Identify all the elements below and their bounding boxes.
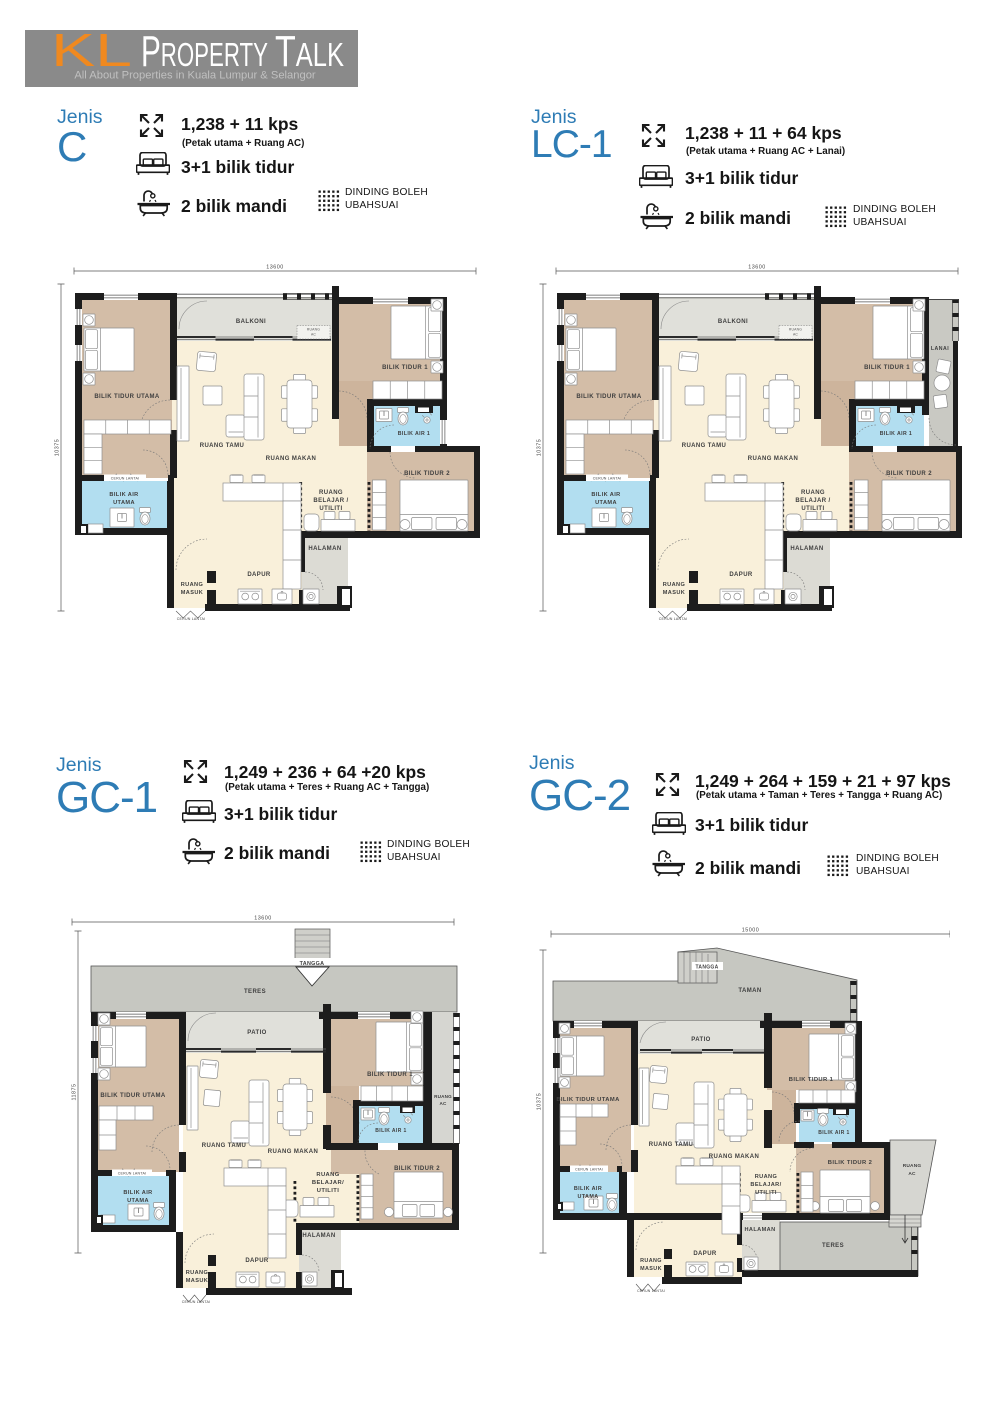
svg-text:AC: AC (439, 1101, 447, 1106)
svg-text:BILIK AIR 1: BILIK AIR 1 (375, 1128, 406, 1134)
svg-text:UTILITI: UTILITI (801, 506, 824, 512)
svg-text:CERUN LANTAI: CERUN LANTAI (637, 1289, 665, 1293)
svg-text:RUANG TAMU: RUANG TAMU (649, 1142, 694, 1148)
svg-text:BILIK AIR: BILIK AIR (109, 492, 138, 498)
svg-text:CERUN LANTAI: CERUN LANTAI (118, 1172, 147, 1176)
svg-text:BILIK AIR 1: BILIK AIR 1 (818, 1130, 849, 1136)
svg-text:HALAMAN: HALAMAN (790, 546, 823, 552)
svg-text:UTAMA: UTAMA (595, 500, 617, 506)
svg-text:BILIK AIR: BILIK AIR (574, 1186, 602, 1192)
svg-text:BELAJAR /: BELAJAR / (795, 498, 830, 504)
svg-text:DAPUR: DAPUR (245, 1258, 269, 1264)
svg-text:AC: AC (908, 1171, 916, 1177)
svg-text:RUANG: RUANG (316, 1172, 339, 1178)
svg-text:RUANG MAKAN: RUANG MAKAN (748, 456, 798, 462)
svg-text:BILIK TIDUR 2: BILIK TIDUR 2 (404, 471, 450, 477)
svg-text:RUANG: RUANG (319, 490, 343, 496)
svg-text:MASUK: MASUK (186, 1278, 209, 1284)
svg-text:RUANG TAMU: RUANG TAMU (202, 1143, 247, 1149)
svg-text:DAPUR: DAPUR (247, 572, 271, 578)
svg-text:RUANG: RUANG (186, 1270, 209, 1276)
svg-text:RUANG MAKAN: RUANG MAKAN (268, 1149, 318, 1155)
svg-text:BALKONI: BALKONI (236, 319, 266, 325)
svg-text:BILIK TIDUR 1: BILIK TIDUR 1 (367, 1072, 413, 1078)
svg-text:RUANG: RUANG (663, 582, 686, 588)
svg-text:RUANG: RUANG (307, 328, 320, 332)
svg-text:BILIK AIR: BILIK AIR (123, 1190, 152, 1196)
svg-text:BILIK TIDUR 1: BILIK TIDUR 1 (382, 365, 428, 371)
svg-text:RUANG: RUANG (640, 1258, 662, 1264)
svg-text:BILIK TIDUR 1: BILIK TIDUR 1 (864, 365, 910, 371)
svg-text:UTILITI: UTILITI (317, 1188, 339, 1194)
svg-text:BILIK AIR: BILIK AIR (591, 492, 620, 498)
svg-text:10375: 10375 (537, 1093, 543, 1111)
svg-text:RUANG: RUANG (755, 1174, 778, 1180)
svg-text:BELAJAR/: BELAJAR/ (312, 1180, 344, 1186)
svg-text:UTILITI: UTILITI (319, 506, 342, 512)
svg-text:10375: 10375 (537, 439, 543, 457)
svg-text:UTILITI: UTILITI (755, 1190, 777, 1196)
svg-text:13600: 13600 (748, 265, 766, 271)
svg-text:RUANG TAMU: RUANG TAMU (200, 443, 245, 449)
svg-text:BELAJAR /: BELAJAR / (313, 498, 348, 504)
svg-text:HALAMAN: HALAMAN (308, 546, 341, 552)
svg-text:TERES: TERES (822, 1243, 844, 1249)
svg-text:RUANG: RUANG (801, 490, 825, 496)
svg-text:RUANG TAMU: RUANG TAMU (682, 443, 727, 449)
svg-text:TERES: TERES (244, 989, 266, 995)
svg-text:BALKONI: BALKONI (718, 319, 748, 325)
svg-text:RUANG MAKAN: RUANG MAKAN (709, 1154, 759, 1160)
svg-text:BELAJAR/: BELAJAR/ (750, 1182, 781, 1188)
svg-text:MASUK: MASUK (640, 1266, 662, 1272)
svg-text:BILIK TIDUR UTAMA: BILIK TIDUR UTAMA (94, 394, 160, 400)
svg-text:RUANG: RUANG (789, 328, 802, 332)
svg-text:CERUN LANTAI: CERUN LANTAI (659, 617, 688, 621)
svg-text:AC: AC (793, 333, 798, 337)
svg-text:DAPUR: DAPUR (729, 572, 753, 578)
svg-text:AC: AC (311, 333, 316, 337)
svg-text:BILIK TIDUR 1: BILIK TIDUR 1 (789, 1077, 834, 1083)
svg-text:CERUN LANTAI: CERUN LANTAI (111, 477, 140, 481)
svg-text:BILIK TIDUR 2: BILIK TIDUR 2 (886, 471, 932, 477)
svg-text:UTAMA: UTAMA (577, 1194, 598, 1200)
svg-text:CERUN LANTAI: CERUN LANTAI (177, 617, 206, 621)
svg-text:CERUN LANTAI: CERUN LANTAI (575, 1168, 603, 1172)
svg-text:LANAI: LANAI (931, 346, 949, 352)
svg-text:13600: 13600 (266, 265, 284, 271)
svg-text:BILIK TIDUR UTAMA: BILIK TIDUR UTAMA (576, 394, 642, 400)
svg-text:MASUK: MASUK (663, 590, 686, 596)
svg-text:TAMAN: TAMAN (738, 988, 761, 994)
svg-text:BILIK TIDUR 2: BILIK TIDUR 2 (394, 1166, 440, 1172)
svg-text:UTAMA: UTAMA (127, 1198, 149, 1204)
svg-text:CERUN LANTAI: CERUN LANTAI (182, 1300, 211, 1304)
svg-text:BILIK TIDUR UTAMA: BILIK TIDUR UTAMA (556, 1097, 620, 1103)
svg-text:RUANG MAKAN: RUANG MAKAN (266, 456, 316, 462)
svg-text:TANGGA: TANGGA (695, 965, 718, 971)
svg-text:HALAMAN: HALAMAN (302, 1233, 335, 1239)
svg-text:10375: 10375 (55, 439, 61, 457)
svg-text:CERUN LANTAI: CERUN LANTAI (593, 477, 622, 481)
svg-text:BILIK AIR 1: BILIK AIR 1 (880, 431, 912, 437)
svg-text:UTAMA: UTAMA (113, 500, 135, 506)
svg-text:BILIK AIR 1: BILIK AIR 1 (398, 431, 430, 437)
svg-text:All About Properties in Kuala: All About Properties in Kuala Lumpur & S… (74, 70, 316, 82)
svg-text:RUANG: RUANG (181, 582, 204, 588)
svg-text:MASUK: MASUK (181, 590, 204, 596)
svg-text:DAPUR: DAPUR (693, 1251, 717, 1257)
svg-text:RUANG: RUANG (903, 1163, 922, 1169)
svg-text:RUANG: RUANG (434, 1094, 452, 1099)
svg-text:HALAMAN: HALAMAN (744, 1227, 775, 1233)
svg-text:BILIK TIDUR 2: BILIK TIDUR 2 (828, 1160, 873, 1166)
svg-text:13600: 13600 (254, 916, 272, 922)
svg-text:PATIO: PATIO (247, 1030, 266, 1036)
svg-text:15000: 15000 (742, 928, 760, 934)
svg-text:PATIO: PATIO (691, 1037, 710, 1043)
svg-text:11875: 11875 (72, 1083, 78, 1100)
svg-text:BILIK TIDUR UTAMA: BILIK TIDUR UTAMA (100, 1093, 166, 1099)
